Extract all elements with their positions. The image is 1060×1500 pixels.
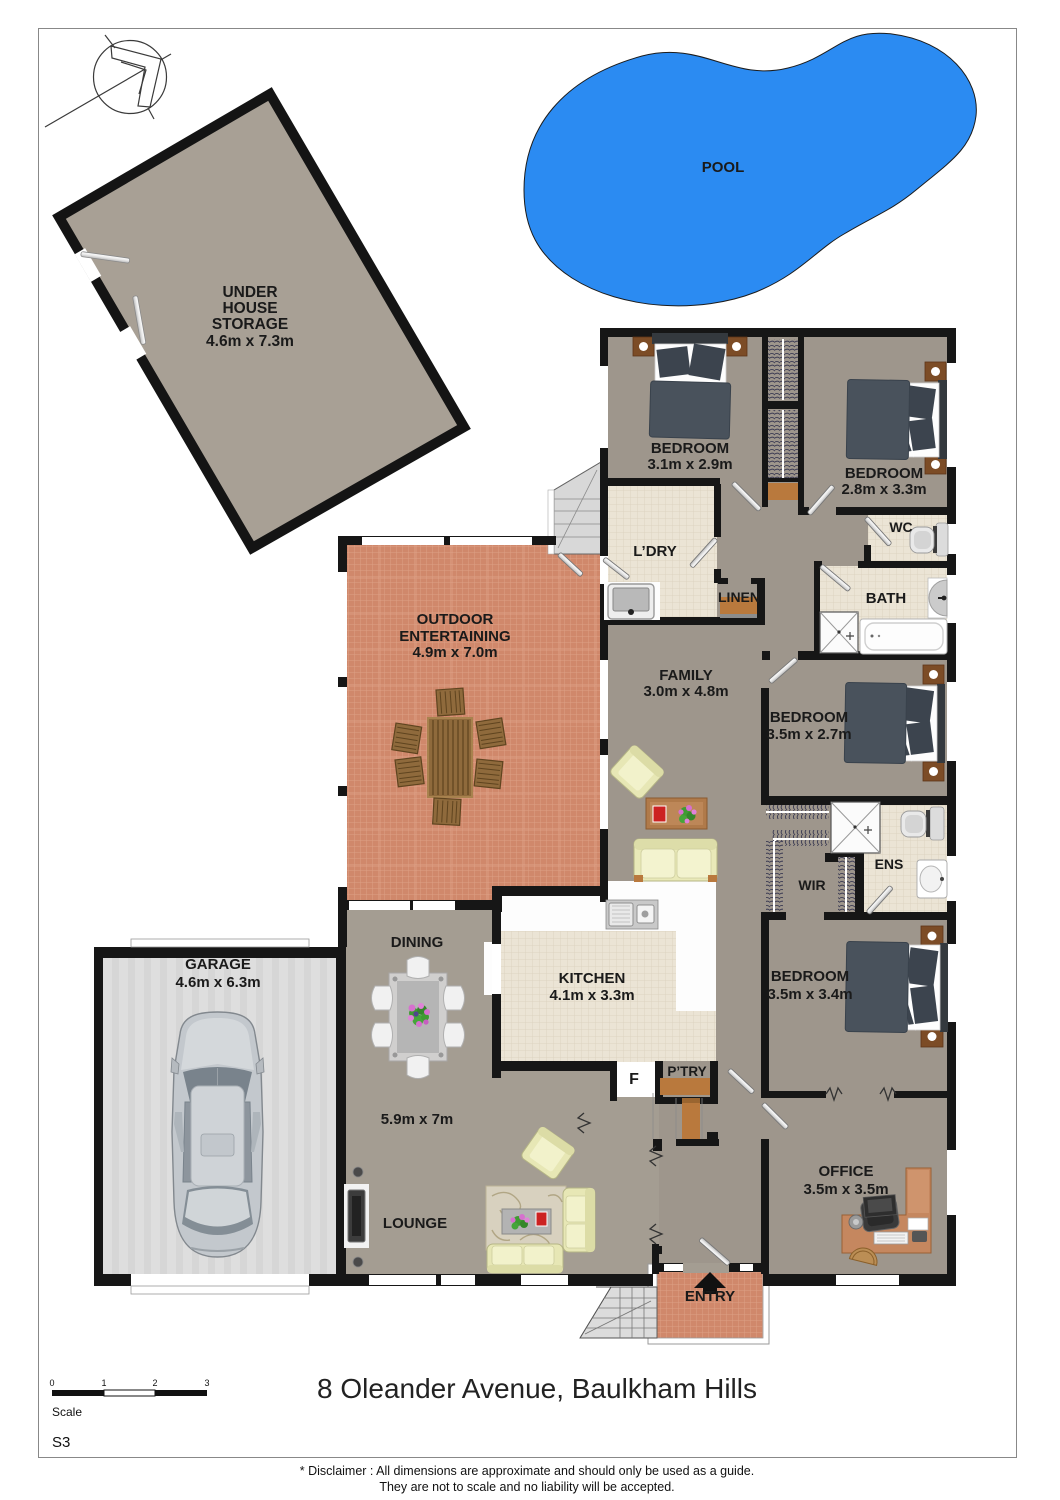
svg-text:FAMILY: FAMILY <box>659 667 713 684</box>
svg-text:BEDROOM: BEDROOM <box>770 709 848 726</box>
svg-text:WC: WC <box>889 519 912 535</box>
svg-text:BEDROOM: BEDROOM <box>771 968 849 985</box>
svg-text:P’TRY: P’TRY <box>667 1064 706 1079</box>
svg-text:4.6m x 7.3m: 4.6m x 7.3m <box>206 333 294 350</box>
svg-text:0: 0 <box>49 1378 54 1388</box>
svg-text:POOL: POOL <box>702 159 745 176</box>
svg-text:4.6m x 6.3m: 4.6m x 6.3m <box>175 974 260 991</box>
svg-text:3.1m x 2.9m: 3.1m x 2.9m <box>647 456 732 473</box>
svg-text:UNDER: UNDER <box>222 284 277 301</box>
svg-text:KITCHEN: KITCHEN <box>559 970 626 987</box>
svg-text:* Disclaimer : All dimensions: * Disclaimer : All dimensions are approx… <box>300 1464 754 1478</box>
svg-text:F: F <box>629 1071 639 1088</box>
svg-text:2.8m x 3.3m: 2.8m x 3.3m <box>841 481 926 498</box>
svg-text:Scale: Scale <box>52 1405 82 1419</box>
svg-text:5.9m x 7m: 5.9m x 7m <box>381 1111 454 1128</box>
svg-text:LINEN: LINEN <box>718 589 760 605</box>
svg-text:3.5m x 2.7m: 3.5m x 2.7m <box>766 726 851 743</box>
svg-text:3.5m x 3.5m: 3.5m x 3.5m <box>803 1181 888 1198</box>
svg-text:2: 2 <box>152 1378 157 1388</box>
svg-text:8 Oleander Avenue, Baulkham Hi: 8 Oleander Avenue, Baulkham Hills <box>317 1373 757 1404</box>
svg-text:4.9m x 7.0m: 4.9m x 7.0m <box>412 644 497 661</box>
svg-text:HOUSE: HOUSE <box>222 300 277 317</box>
svg-text:OUTDOOR: OUTDOOR <box>417 611 494 628</box>
svg-text:3: 3 <box>204 1378 209 1388</box>
svg-text:1: 1 <box>101 1378 106 1388</box>
svg-text:4.1m x 3.3m: 4.1m x 3.3m <box>549 987 634 1004</box>
svg-text:OFFICE: OFFICE <box>819 1163 874 1180</box>
svg-text:GARAGE: GARAGE <box>185 956 251 973</box>
svg-text:ENTRY: ENTRY <box>685 1288 735 1305</box>
svg-text:ENS: ENS <box>875 856 904 872</box>
svg-text:They are not to scale and no l: They are not to scale and no liability w… <box>379 1480 674 1494</box>
svg-text:WIR: WIR <box>798 877 825 893</box>
svg-text:3.0m x 4.8m: 3.0m x 4.8m <box>643 683 728 700</box>
svg-text:S3: S3 <box>52 1434 70 1451</box>
svg-text:DINING: DINING <box>391 934 444 951</box>
svg-text:STORAGE: STORAGE <box>212 316 288 333</box>
svg-text:BATH: BATH <box>866 590 907 607</box>
svg-text:ENTERTAINING: ENTERTAINING <box>399 628 510 645</box>
svg-text:3.5m x 3.4m: 3.5m x 3.4m <box>767 986 852 1003</box>
svg-text:BEDROOM: BEDROOM <box>845 465 923 482</box>
svg-text:BEDROOM: BEDROOM <box>651 440 729 457</box>
svg-text:LOUNGE: LOUNGE <box>383 1215 447 1232</box>
svg-text:L’DRY: L’DRY <box>633 543 677 560</box>
